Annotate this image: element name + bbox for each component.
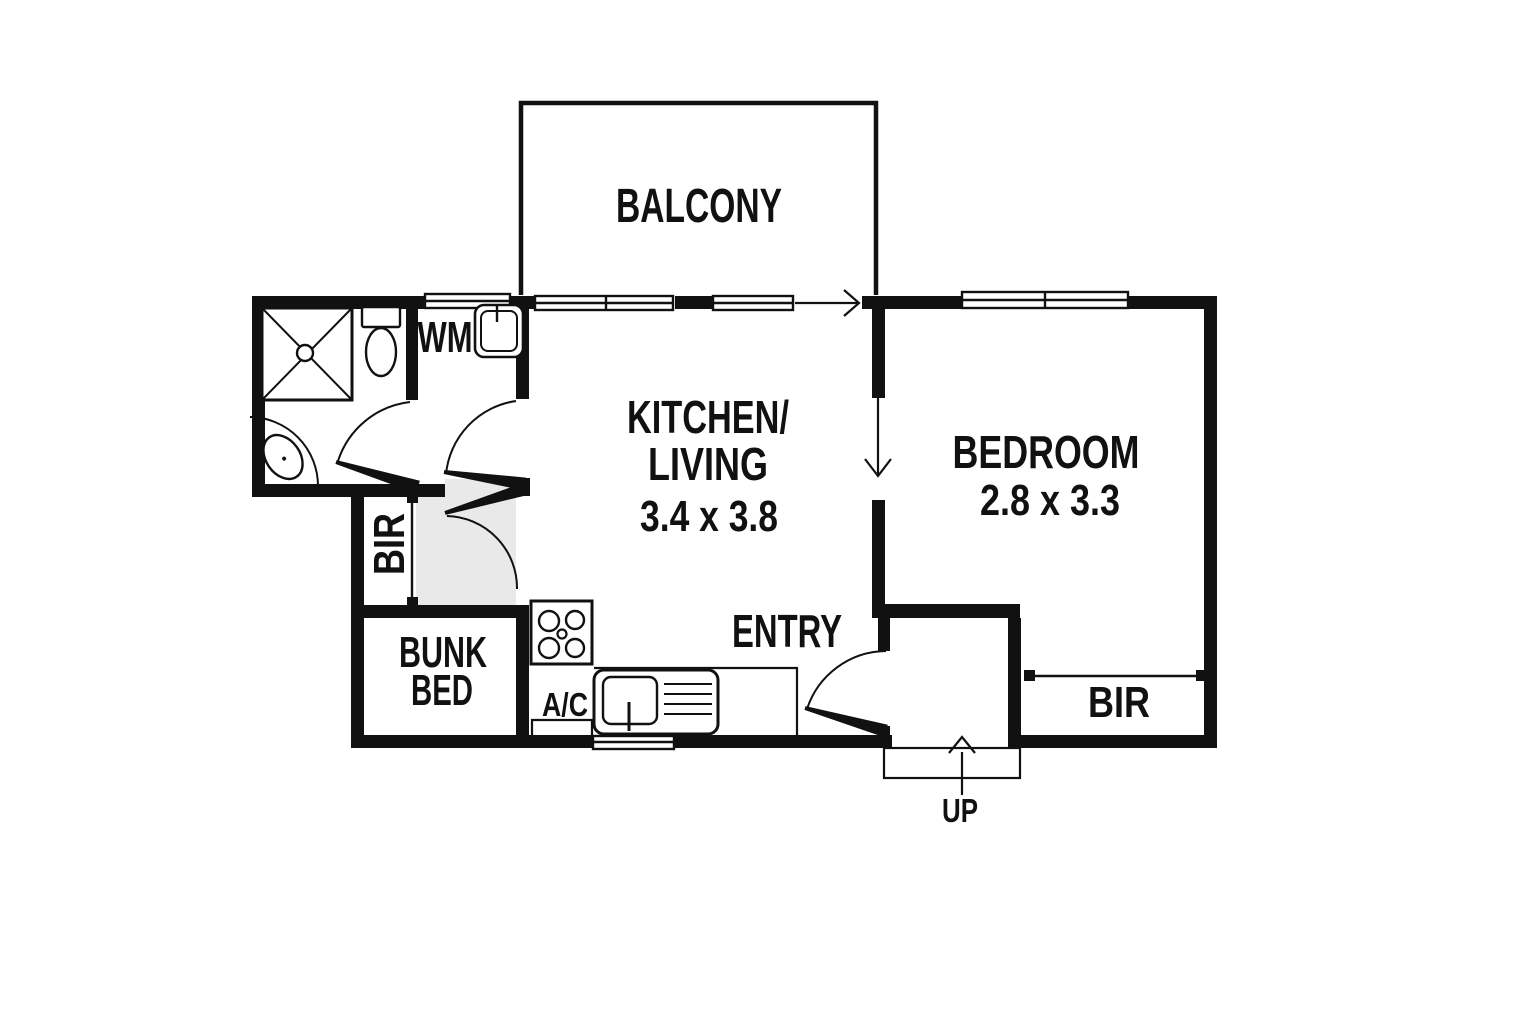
wall-west-lower <box>351 490 364 748</box>
sliding-door-panel-b <box>713 296 793 310</box>
shower-icon <box>262 308 352 400</box>
cooktop-icon <box>531 601 592 664</box>
floor-plan-page: BALCONY KITCHEN/ LIVING 3.4 x 3.8 BEDROO… <box>0 0 1536 1024</box>
wall-bedroom-west-lower <box>872 500 885 605</box>
wall-bottom-kitchen-b <box>674 735 892 748</box>
wall-top-mid2 <box>675 296 712 309</box>
wall-bunk-east <box>516 605 529 748</box>
wall-bathroom-east <box>406 308 418 400</box>
wall-stair-left-stub <box>878 618 890 651</box>
bunk-label-line2: BED <box>411 666 473 715</box>
toilet-icon <box>362 307 400 376</box>
bir-bedroom-label: BIR <box>1088 678 1150 727</box>
wall-bottom-kitchen-a <box>351 735 595 748</box>
washing-machine-label: WM <box>418 313 473 362</box>
wall-bunk-top <box>351 605 528 618</box>
wall-stair-top <box>872 604 1020 618</box>
bedroom-dimensions: 2.8 x 3.3 <box>980 476 1120 525</box>
wall-bedroom-west-upper <box>872 296 885 398</box>
wall-stair-right <box>1008 618 1021 748</box>
bathroom-fixtures <box>255 307 400 486</box>
stairs <box>884 737 1020 795</box>
kitchen-living-label-line1: KITCHEN/ <box>627 391 789 443</box>
kitchen-living-dimensions: 3.4 x 3.8 <box>640 492 778 541</box>
sliding-door-arrow <box>795 290 859 316</box>
bedroom-slider-arrow <box>865 398 891 476</box>
sliding-door-panel-a <box>535 296 673 310</box>
bir-hall-label: BIR <box>365 513 414 575</box>
sink-icon <box>594 670 718 734</box>
door-swing-laundry <box>444 401 526 490</box>
wall-bottom-bedroom <box>1020 735 1217 748</box>
balcony-label: BALCONY <box>616 180 782 233</box>
washing-machine-icon <box>475 305 523 357</box>
stair-landing <box>884 748 1020 778</box>
air-conditioner-label: A/C <box>542 686 588 723</box>
floor-plan: BALCONY KITCHEN/ LIVING 3.4 x 3.8 BEDROO… <box>0 0 1536 1024</box>
window-kitchen-sink <box>593 736 674 749</box>
window-bedroom <box>962 292 1128 308</box>
door-swing-entry <box>805 651 888 737</box>
wall-top-right <box>1128 296 1217 309</box>
stairs-label: UP <box>942 792 978 829</box>
entry-label: ENTRY <box>732 605 842 657</box>
bedroom-label: BEDROOM <box>953 426 1140 478</box>
kitchen-living-label-line2: LIVING <box>648 438 768 490</box>
